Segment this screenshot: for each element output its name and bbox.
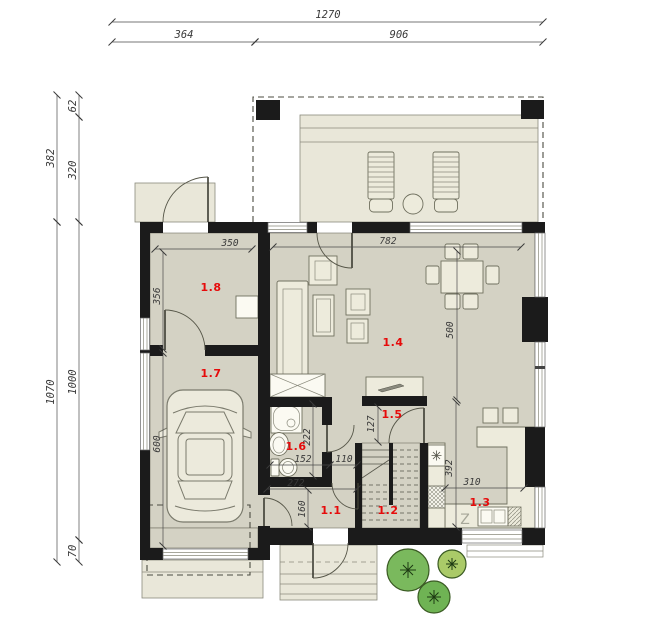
tv-sideboard — [366, 377, 423, 397]
stair-newel-wall — [389, 443, 393, 505]
dining-chair — [445, 294, 460, 309]
dining-chair — [426, 266, 439, 284]
window — [535, 342, 545, 427]
boiler-unit — [236, 296, 258, 318]
room-label-1-8: 1.8 — [201, 281, 222, 294]
room-label-1-7: 1.7 — [201, 367, 222, 380]
room-label-1-4: 1.4 — [383, 336, 404, 349]
window — [141, 353, 150, 450]
window — [535, 233, 545, 297]
dimension-label: 127 — [366, 415, 377, 432]
dimension-label: 364 — [174, 29, 194, 41]
shower — [271, 404, 302, 433]
room-label-1-5: 1.5 — [382, 408, 403, 421]
dimension-label: 160 — [297, 500, 308, 517]
dimension-label: 356 — [152, 287, 163, 305]
coffee-table — [347, 319, 368, 343]
dimension-label: 382 — [45, 149, 57, 169]
entry-porch-side — [135, 183, 215, 222]
room-label-1-2: 1.2 — [378, 504, 399, 517]
cooktop — [428, 445, 445, 466]
dishwasher — [428, 486, 445, 508]
window-mullion — [535, 366, 545, 369]
patio-table — [403, 194, 423, 214]
floor-plan-drawing: Z — [0, 0, 660, 626]
dimension-label: 1000 — [67, 369, 79, 394]
dimension-label: 70 — [67, 545, 79, 558]
room-label-1-1: 1.1 — [321, 504, 342, 517]
dimension-label: 1270 — [315, 9, 340, 21]
trees — [387, 549, 466, 613]
entrance-steps — [280, 545, 377, 600]
tree-icon — [387, 549, 429, 591]
dining-chair — [463, 244, 478, 259]
garage-door — [163, 549, 248, 559]
floor-plan-canvas: Z — [0, 0, 660, 626]
window — [268, 223, 307, 233]
armchair — [309, 256, 337, 285]
window — [141, 318, 150, 350]
dimension-label: 600 — [152, 435, 163, 452]
dimension-label: 350 — [220, 238, 238, 249]
dimension-label: 152 — [294, 454, 311, 465]
dimension-label: 1070 — [45, 379, 57, 404]
sofa — [277, 281, 308, 383]
drainer — [508, 507, 521, 526]
dining-chair — [445, 244, 460, 259]
sink-marker-label: Z — [460, 512, 470, 528]
dimension-label: 62 — [67, 100, 79, 113]
tree-icon — [438, 550, 466, 578]
terrace-post — [256, 100, 280, 120]
dining-chair — [486, 266, 499, 284]
coffee-table — [346, 289, 370, 315]
wardrobe — [270, 374, 325, 397]
bar-stool — [483, 408, 498, 423]
dimension-label: 500 — [445, 321, 456, 338]
terrace-post — [521, 100, 544, 119]
driveway — [142, 560, 263, 598]
dimension-label: 782 — [379, 236, 396, 247]
room-label-1-6: 1.6 — [286, 440, 307, 453]
window — [462, 530, 522, 543]
garage-floor-extension — [150, 528, 258, 548]
pilaster — [522, 297, 548, 342]
dining-table — [441, 261, 483, 293]
kitchen-sink — [478, 507, 521, 526]
dimension-label: 310 — [462, 477, 480, 488]
window — [410, 223, 522, 233]
dimension-label: 110 — [335, 454, 352, 465]
car-top-view — [159, 390, 251, 522]
dimension-label: 272 — [287, 478, 304, 489]
toilet — [271, 459, 297, 477]
sun-lounger — [368, 152, 394, 212]
window — [535, 487, 545, 528]
dining-chair — [463, 294, 478, 309]
chaise — [313, 295, 334, 336]
tree-icon — [418, 581, 450, 613]
dimension-label: 320 — [67, 161, 79, 181]
sun-lounger — [433, 152, 459, 212]
dimension-label: 906 — [390, 29, 409, 41]
bar-stool — [503, 408, 518, 423]
room-label-1-3: 1.3 — [470, 496, 491, 509]
dimension-label: 392 — [444, 459, 455, 477]
burner-icon — [432, 451, 442, 461]
